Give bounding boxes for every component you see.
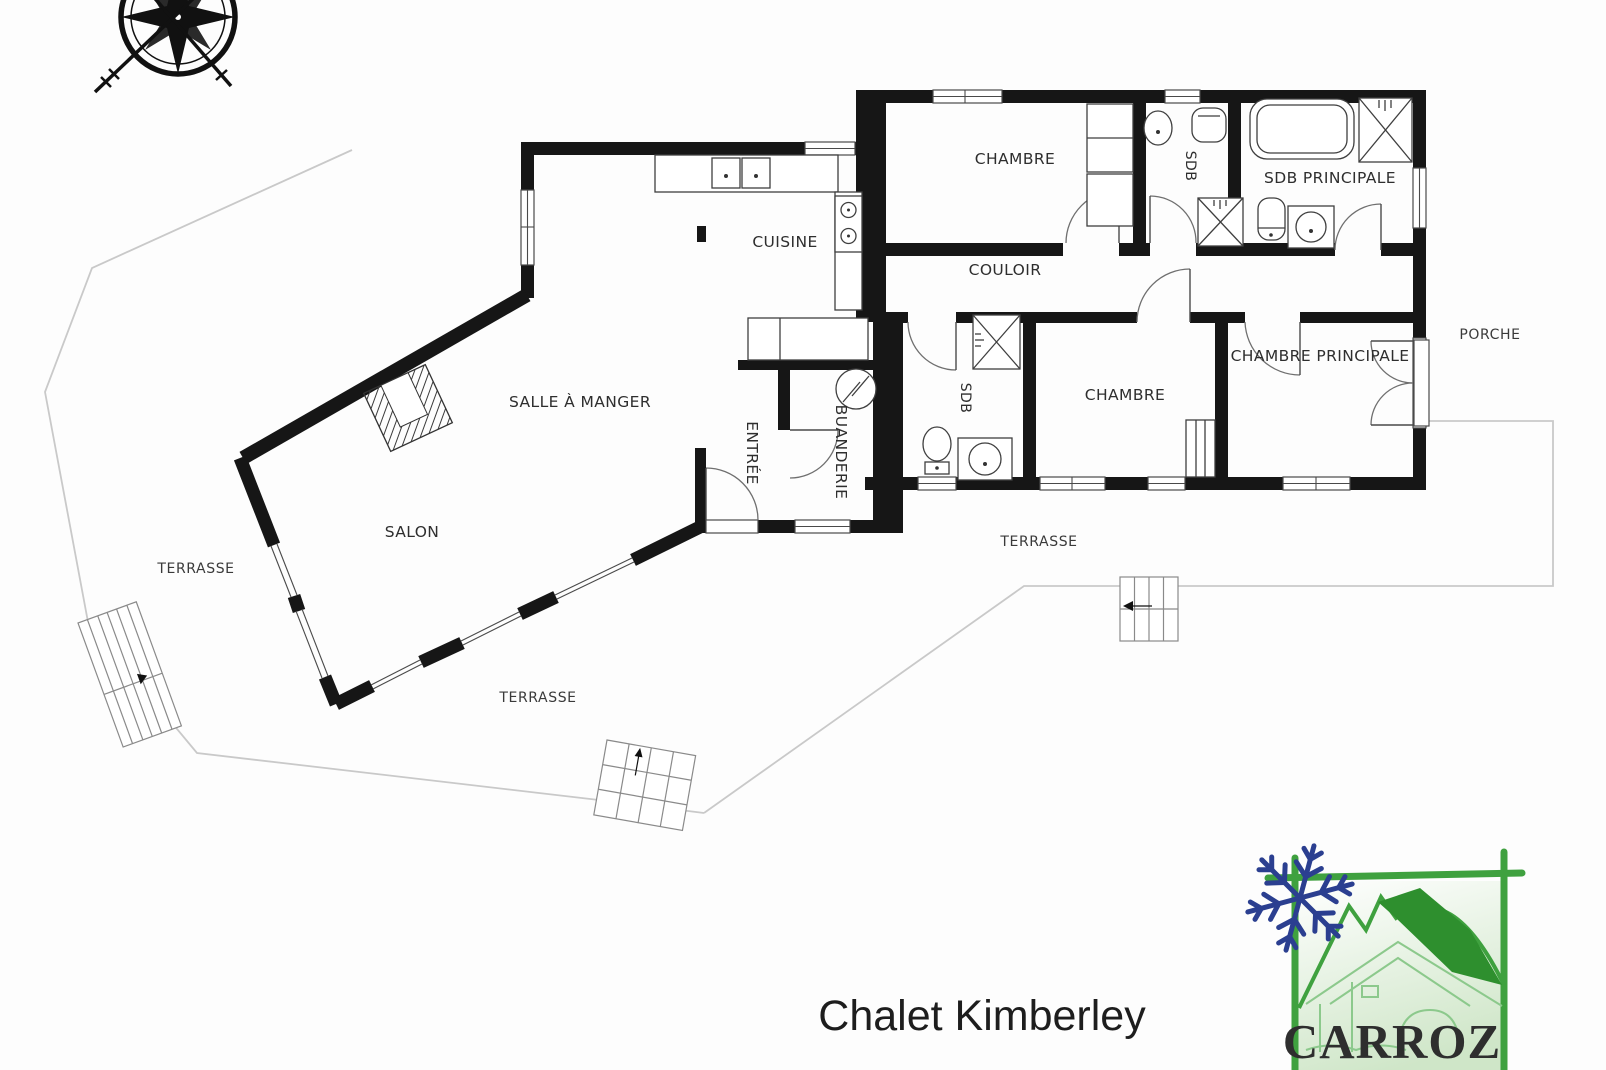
label-terrasse-bas: TERRASSE (498, 690, 576, 706)
label-sdb-principale: SDB PRINCIPALE (1264, 169, 1396, 187)
kitchen-sink-icon (712, 158, 740, 188)
stairs-bottom (594, 740, 696, 830)
compass-rose-icon (95, 0, 238, 92)
stairs-left (78, 602, 181, 747)
label-entree: ENTRÉE (743, 421, 762, 485)
label-sdb-top: SDB (1182, 151, 1198, 181)
label-chambre-bas: CHAMBRE (1085, 386, 1165, 404)
closet (1087, 174, 1133, 226)
label-terrasse-gauche: TERRASSE (156, 561, 234, 577)
logo-brand-text: CARROZ (1283, 1014, 1501, 1069)
cabinet (748, 318, 868, 360)
toilet-icon (1192, 108, 1226, 142)
label-couloir: COULOIR (969, 261, 1042, 279)
bathtub-icon (1250, 99, 1354, 159)
closet (1186, 420, 1215, 477)
agency-logo: CARROZ (1235, 832, 1522, 1070)
stairs-right (1120, 577, 1178, 641)
label-sdb-bas: SDB (957, 383, 973, 413)
toilet-icon (923, 427, 951, 461)
label-terrasse-droite: TERRASSE (999, 534, 1077, 550)
kitchen-sink-icon (742, 158, 770, 188)
label-cuisine: CUISINE (752, 233, 817, 251)
label-porche: PORCHE (1459, 327, 1520, 343)
plan-title: Chalet Kimberley (818, 992, 1146, 1040)
floor-plan-canvas: CHAMBRE SDB SDB PRINCIPALE CUISINE COULO… (0, 0, 1606, 1070)
label-chambre-top: CHAMBRE (975, 150, 1055, 168)
label-salle-a-manger: SALLE À MANGER (509, 392, 651, 411)
sink-icon (1144, 111, 1172, 145)
label-salon: SALON (385, 523, 440, 541)
label-chambre-principale: CHAMBRE PRINCIPALE (1231, 347, 1410, 365)
front-door-threshold (706, 520, 758, 533)
washing-machine-icon (836, 369, 876, 409)
label-buanderie: BUANDERIE (832, 405, 850, 500)
floor-plan-page: CHAMBRE SDB SDB PRINCIPALE CUISINE COULO… (0, 0, 1606, 1070)
